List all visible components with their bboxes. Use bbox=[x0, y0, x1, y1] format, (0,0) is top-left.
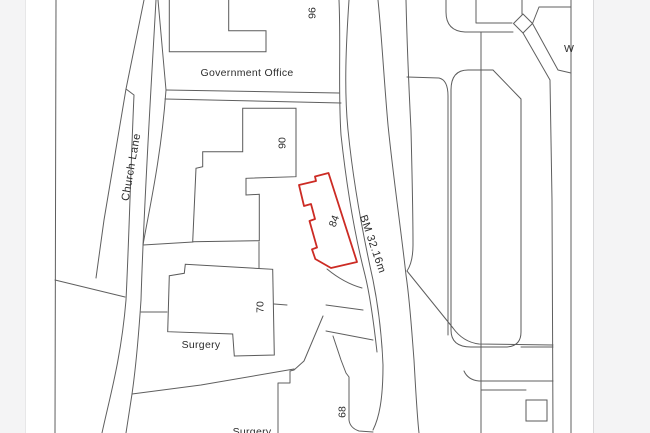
main-road-east-pavement bbox=[406, 0, 413, 271]
house-number-90: 90 bbox=[277, 137, 289, 149]
south-long-boundary bbox=[132, 369, 294, 394]
right-margin bbox=[594, 0, 650, 433]
small-square-building-outline bbox=[526, 400, 547, 421]
surgery-lower-label: Surgery bbox=[233, 426, 272, 433]
parcel-68-west-boundary bbox=[278, 316, 323, 433]
left-margin bbox=[0, 0, 25, 433]
gov-office-south-boundary-2 bbox=[165, 99, 341, 103]
church-lane-east-parcel-line bbox=[143, 0, 166, 245]
government-office-label: Government Office bbox=[200, 67, 293, 79]
gov-office-south-boundary bbox=[166, 90, 339, 93]
west-branch-boundary bbox=[55, 280, 125, 297]
surgery-east-connector bbox=[274, 304, 287, 305]
government-office-building-outline bbox=[169, 0, 266, 52]
house-number-84: 84 bbox=[327, 213, 342, 228]
diamond-ne-link bbox=[533, 7, 572, 24]
diamond-marker bbox=[514, 14, 533, 33]
site-plan-svg: Government Office Church Lane BM 32.16m … bbox=[26, 0, 594, 433]
house-number-70: 70 bbox=[255, 301, 267, 313]
stadium-building-outline bbox=[451, 70, 521, 347]
west-boundary-line bbox=[55, 0, 56, 433]
house-number-68: 68 bbox=[337, 406, 349, 418]
surgery-upper-label: Surgery bbox=[182, 339, 221, 351]
church-lane-label: Church Lane bbox=[120, 132, 144, 202]
main-road-west-pavement bbox=[339, 0, 377, 352]
below-stadium-boundary bbox=[464, 371, 553, 381]
plot-fan-boundary-c bbox=[326, 331, 373, 340]
house-number-96: 96 bbox=[307, 7, 319, 19]
east-boundary-line-1 bbox=[550, 80, 553, 433]
plot-fan-boundary-b bbox=[326, 305, 363, 310]
building-90-outline bbox=[193, 108, 296, 241]
buildings bbox=[168, 0, 547, 421]
boundaries-and-roads bbox=[55, 0, 571, 433]
driveway-diagonal-boundary bbox=[407, 271, 553, 345]
w-partial-label: W bbox=[564, 43, 574, 55]
ne-inner-road-north-edge bbox=[476, 0, 512, 23]
site-plan-map: Government Office Church Lane BM 32.16m … bbox=[25, 0, 594, 433]
map-labels: Government Office Church Lane BM 32.16m … bbox=[120, 7, 574, 433]
surgery-north-boundary bbox=[143, 242, 193, 245]
page: { "colors": { "page_margin_bg": "#f4f4f5… bbox=[0, 0, 650, 433]
ne-inner-road-south-edge bbox=[446, 0, 513, 32]
diagonal-road-south-edge bbox=[523, 33, 550, 80]
plot-fan-boundary-a bbox=[327, 269, 362, 288]
benchmark-label: BM 32.16m bbox=[357, 213, 388, 274]
